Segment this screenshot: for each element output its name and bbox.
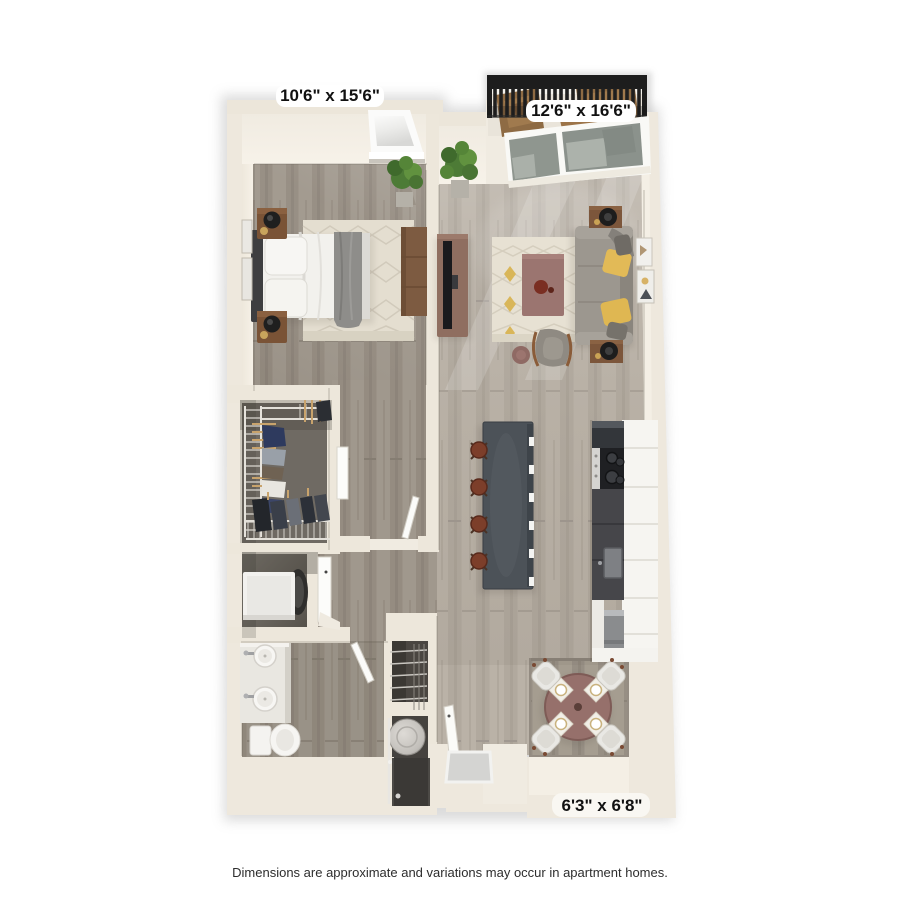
svg-text:Dimensions are approximate and: Dimensions are approximate and variation… <box>232 865 668 880</box>
svg-text:10'6" x 15'6": 10'6" x 15'6" <box>280 86 380 105</box>
svg-text:6'3" x 6'8": 6'3" x 6'8" <box>562 796 643 815</box>
svg-text:12'6" x 16'6": 12'6" x 16'6" <box>531 101 631 120</box>
